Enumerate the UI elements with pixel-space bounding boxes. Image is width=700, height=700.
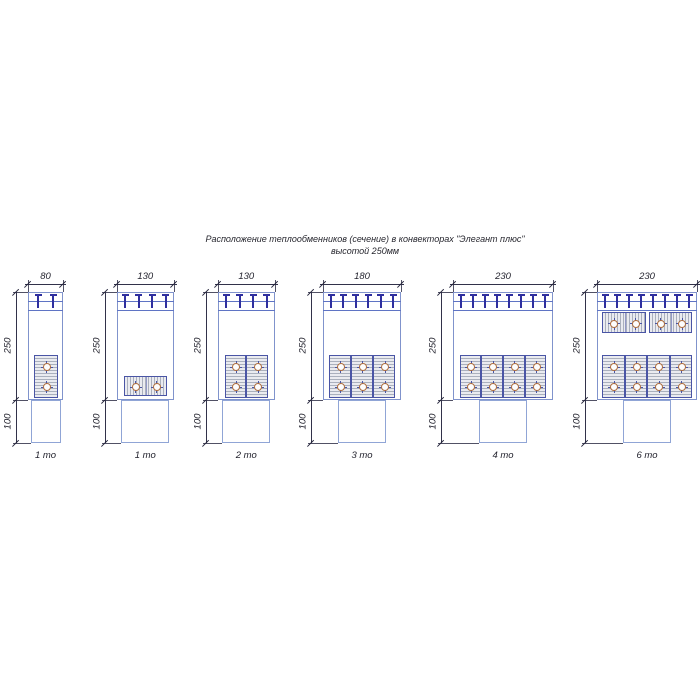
grille-tee-bracket: [506, 294, 513, 308]
extension-line: [308, 443, 338, 444]
grille-tee-bracket: [638, 294, 645, 308]
dimension-line: [215, 284, 278, 285]
tube-ring: [381, 363, 389, 371]
grille-tee-bracket: [602, 294, 609, 308]
tube-circle: [676, 381, 688, 393]
grille-tee-bracket: [470, 294, 477, 308]
width-dimension-label: 230: [627, 271, 667, 282]
tube-ring: [359, 363, 367, 371]
tube-ring: [232, 383, 240, 391]
extension-line: [582, 443, 623, 444]
block-divider: [671, 313, 672, 332]
grille-tee-bracket: [458, 294, 465, 308]
tube-circle: [151, 381, 163, 393]
dimension-line: [594, 284, 700, 285]
heat-exchanger-block-vertical: [329, 355, 351, 398]
drawing-page: Расположение теплообменников (сечение) в…: [0, 0, 700, 700]
tee-stem: [380, 295, 382, 308]
grille-tee-bracket: [149, 294, 156, 308]
height-dimension-label: 250: [92, 331, 103, 361]
convector-pedestal: [121, 400, 169, 443]
tee-stem: [52, 295, 54, 308]
width-dimension-label: 230: [483, 271, 523, 282]
tee-stem: [37, 295, 39, 308]
dimension-line: [441, 292, 442, 443]
tube-ring: [678, 320, 686, 328]
tee-stem: [355, 295, 357, 308]
tube-circle: [252, 381, 264, 393]
grille-line: [323, 310, 401, 311]
convector-type-label: 1 то: [21, 450, 71, 461]
tee-stem: [124, 295, 126, 308]
base-dimension-label: 100: [3, 406, 14, 436]
dimension-line: [105, 292, 106, 443]
heat-exchanger-block-vertical: [460, 355, 482, 398]
height-dimension-label: 250: [298, 331, 309, 361]
tee-stem: [664, 295, 666, 308]
grille-tee-bracket: [250, 294, 257, 308]
tee-stem: [266, 295, 268, 308]
tube-circle: [465, 361, 477, 373]
tube-circle: [509, 381, 521, 393]
tee-stem: [392, 295, 394, 308]
tube-circle: [379, 381, 391, 393]
grille-line: [218, 310, 275, 311]
tube-ring: [359, 383, 367, 391]
tube-circle: [230, 361, 242, 373]
dimension-line: [16, 292, 17, 443]
heat-exchanger-block-vertical: [647, 355, 670, 398]
tee-stem: [472, 295, 474, 308]
convector-type-label: 1 то: [120, 450, 170, 461]
tube-circle: [487, 361, 499, 373]
tee-stem: [628, 295, 630, 308]
height-dimension-label: 250: [3, 331, 14, 361]
tee-stem: [225, 295, 227, 308]
heat-exchanger-block-vertical: [503, 355, 525, 398]
width-dimension-label: 130: [125, 271, 165, 282]
tube-ring: [533, 363, 541, 371]
heat-exchanger-block-vertical: [225, 355, 247, 398]
grille-tee-bracket: [542, 294, 549, 308]
heat-exchanger-block-vertical: [351, 355, 373, 398]
grille-tee-bracket: [686, 294, 693, 308]
grille-line: [597, 301, 697, 302]
heat-exchanger-block-horizontal: [124, 376, 167, 396]
tube-circle: [130, 381, 142, 393]
tee-stem: [330, 295, 332, 308]
convector-pedestal: [338, 400, 386, 443]
grille-tee-bracket: [377, 294, 384, 308]
tube-circle: [631, 381, 643, 393]
heat-exchanger-block-horizontal: [649, 312, 693, 333]
grille-tee-bracket: [614, 294, 621, 308]
convector-type-label: 6 то: [622, 450, 672, 461]
heat-exchanger-block-vertical: [602, 355, 625, 398]
grille-line: [28, 301, 63, 302]
height-dimension-label: 250: [193, 331, 204, 361]
tube-ring: [467, 383, 475, 391]
tube-ring: [632, 320, 640, 328]
tube-circle: [676, 361, 688, 373]
heat-exchanger-block-vertical: [246, 355, 268, 398]
tee-stem: [544, 295, 546, 308]
tube-ring: [610, 320, 618, 328]
tee-stem: [616, 295, 618, 308]
tube-circle: [655, 318, 667, 330]
base-dimension-label: 100: [572, 406, 583, 436]
grille-tee-bracket: [50, 294, 57, 308]
tube-circle: [608, 361, 620, 373]
convector-pedestal: [31, 400, 61, 443]
grille-tee-bracket: [365, 294, 372, 308]
grille-tee-bracket: [674, 294, 681, 308]
tube-circle: [631, 361, 643, 373]
grille-tee-bracket: [263, 294, 270, 308]
tube-ring: [610, 383, 618, 391]
dimension-line: [320, 284, 404, 285]
tube-ring: [678, 383, 686, 391]
tube-ring: [678, 363, 686, 371]
grille-tee-bracket: [135, 294, 142, 308]
tee-stem: [342, 295, 344, 308]
height-dimension-label: 250: [428, 331, 439, 361]
tube-ring: [657, 320, 665, 328]
dimension-line: [450, 284, 556, 285]
heat-exchanger-block-horizontal: [602, 312, 646, 333]
tube-circle: [487, 381, 499, 393]
block-divider: [146, 377, 147, 395]
tube-ring: [633, 383, 641, 391]
base-dimension-label: 100: [92, 406, 103, 436]
tube-circle: [230, 381, 242, 393]
width-dimension-label: 130: [226, 271, 266, 282]
heat-exchanger-block-vertical: [34, 355, 58, 398]
tube-ring: [153, 383, 161, 391]
tube-circle: [630, 318, 642, 330]
base-dimension-label: 100: [428, 406, 439, 436]
dimension-line: [206, 292, 207, 443]
heat-exchanger-block-vertical: [373, 355, 395, 398]
grille-tee-bracket: [352, 294, 359, 308]
width-dimension-label: 180: [342, 271, 382, 282]
grille-tee-bracket: [236, 294, 243, 308]
tube-circle: [41, 381, 53, 393]
tee-stem: [138, 295, 140, 308]
tube-circle: [357, 361, 369, 373]
tube-circle: [335, 361, 347, 373]
tube-circle: [357, 381, 369, 393]
convector-pedestal: [222, 400, 270, 443]
tube-circle: [608, 318, 620, 330]
grille-tee-bracket: [626, 294, 633, 308]
tee-stem: [520, 295, 522, 308]
tube-circle: [252, 361, 264, 373]
tube-circle: [531, 361, 543, 373]
heat-exchanger-block-vertical: [670, 355, 693, 398]
tee-stem: [239, 295, 241, 308]
tube-ring: [43, 363, 51, 371]
tube-ring: [381, 383, 389, 391]
heat-exchanger-block-vertical: [525, 355, 547, 398]
tee-stem: [151, 295, 153, 308]
dimension-line: [114, 284, 177, 285]
tee-stem: [508, 295, 510, 308]
tee-stem: [484, 295, 486, 308]
grille-tee-bracket: [35, 294, 42, 308]
tube-circle: [531, 381, 543, 393]
grille-tee-bracket: [494, 294, 501, 308]
grille-line: [453, 310, 553, 311]
base-dimension-label: 100: [298, 406, 309, 436]
convector-type-label: 4 то: [478, 450, 528, 461]
grille-tee-bracket: [328, 294, 335, 308]
grille-line: [453, 301, 553, 302]
tube-circle: [465, 381, 477, 393]
convector-type-label: 3 то: [337, 450, 387, 461]
grille-tee-bracket: [162, 294, 169, 308]
tube-circle: [509, 361, 521, 373]
tube-ring: [43, 383, 51, 391]
tee-stem: [652, 295, 654, 308]
tube-ring: [489, 383, 497, 391]
drawing-canvas: 802501001 то1302501001 то1302501002 то18…: [0, 0, 700, 700]
tee-stem: [676, 295, 678, 308]
tube-circle: [653, 381, 665, 393]
convector-pedestal: [623, 400, 671, 443]
tube-circle: [676, 318, 688, 330]
grille-tee-bracket: [530, 294, 537, 308]
tee-stem: [688, 295, 690, 308]
tube-circle: [653, 361, 665, 373]
base-dimension-label: 100: [193, 406, 204, 436]
heat-exchanger-block-vertical: [481, 355, 503, 398]
tube-ring: [467, 363, 475, 371]
tee-stem: [460, 295, 462, 308]
tube-ring: [511, 383, 519, 391]
tee-stem: [604, 295, 606, 308]
tee-stem: [165, 295, 167, 308]
tube-ring: [511, 363, 519, 371]
grille-tee-bracket: [223, 294, 230, 308]
tee-stem: [367, 295, 369, 308]
grille-tee-bracket: [122, 294, 129, 308]
tube-ring: [633, 363, 641, 371]
dimension-line: [311, 292, 312, 443]
grille-tee-bracket: [482, 294, 489, 308]
tee-stem: [532, 295, 534, 308]
heat-exchanger-block-vertical: [625, 355, 648, 398]
tube-ring: [337, 383, 345, 391]
grille-tee-bracket: [390, 294, 397, 308]
tube-ring: [254, 363, 262, 371]
tee-stem: [496, 295, 498, 308]
convector-type-label: 2 то: [221, 450, 271, 461]
block-divider: [625, 313, 626, 332]
grille-line: [597, 310, 697, 311]
tube-ring: [533, 383, 541, 391]
dimension-line: [585, 292, 586, 443]
tube-circle: [608, 381, 620, 393]
grille-line: [117, 310, 174, 311]
grille-tee-bracket: [340, 294, 347, 308]
grille-tee-bracket: [650, 294, 657, 308]
tube-circle: [379, 361, 391, 373]
tee-stem: [252, 295, 254, 308]
grille-tee-bracket: [662, 294, 669, 308]
tube-ring: [655, 383, 663, 391]
tube-ring: [610, 363, 618, 371]
grille-line: [28, 310, 63, 311]
tube-circle: [335, 381, 347, 393]
width-dimension-label: 80: [26, 271, 66, 282]
tube-ring: [655, 363, 663, 371]
tube-ring: [132, 383, 140, 391]
tube-ring: [254, 383, 262, 391]
grille-tee-bracket: [518, 294, 525, 308]
tee-stem: [640, 295, 642, 308]
tube-ring: [232, 363, 240, 371]
tube-circle: [41, 361, 53, 373]
extension-line: [438, 443, 479, 444]
tube-ring: [489, 363, 497, 371]
tube-ring: [337, 363, 345, 371]
height-dimension-label: 250: [572, 331, 583, 361]
convector-pedestal: [479, 400, 527, 443]
